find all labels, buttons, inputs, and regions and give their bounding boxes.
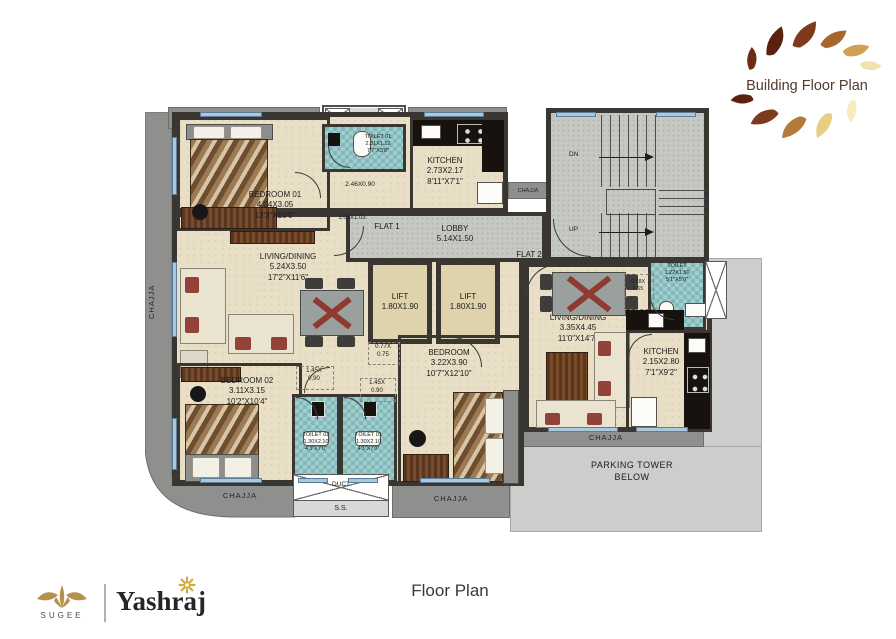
window	[420, 478, 490, 483]
lift-2: LIFT1.80X1.90	[436, 260, 500, 344]
shaft-f2-dim: 0.78X1.65	[624, 279, 652, 293]
floor-plan-page: PARKING TOWERBELOW CHAJJA CHAJJA S.S. CH…	[0, 0, 896, 639]
stair-treads-side	[659, 187, 707, 215]
lobby-label: LOBBY5.14X1.50	[400, 224, 510, 245]
bed-pillow	[224, 457, 252, 478]
window	[348, 478, 378, 483]
toilet-sink	[685, 303, 707, 317]
tv-unit	[230, 231, 315, 244]
toilet-01-top-label: TOILET 012.31X1.127'7"X3'8"	[350, 134, 406, 155]
sofa-cushion	[235, 337, 251, 350]
living-f1-label: LIVING/DINING5.24X3.5017'2"X11'6"	[228, 252, 348, 283]
toilet-01-bottom-label: TOILET 011.30X2.104'3"X7'0"	[340, 432, 397, 453]
ss-bottom-band: S.S.	[293, 500, 389, 517]
stair-landing	[606, 189, 656, 215]
chajja-mini: CHAJJA	[508, 182, 548, 199]
sugee-logo-icon	[33, 584, 91, 610]
kitchen-platform	[631, 397, 657, 427]
bedroom-f2-label: BEDROOM3.22X3.9010'7"X12'10"	[398, 348, 500, 379]
dining-chair	[337, 278, 355, 289]
sofa-cushion	[185, 317, 199, 333]
dining-table-f1	[300, 290, 364, 336]
chajja-bottom-left-label: CHAJJA	[185, 488, 295, 502]
stove-icon	[457, 124, 485, 144]
dining-chair	[305, 336, 323, 347]
dining-chair	[305, 278, 323, 289]
stairs-door-arc	[553, 219, 591, 257]
bed-pillow	[485, 438, 504, 474]
parking-tower-label: PARKING TOWERBELOW	[548, 460, 716, 483]
showcase-cabinet	[546, 352, 588, 404]
stair-treads-upper	[601, 115, 659, 187]
passage-077-dim: 0.77X0.75	[368, 344, 398, 360]
window	[200, 478, 262, 483]
window	[636, 427, 688, 432]
window	[556, 112, 596, 117]
dining-table-f2	[552, 272, 626, 316]
bed-pillow	[485, 398, 504, 434]
desk-chair	[409, 430, 426, 447]
kitchen-f1-label: KITCHEN2.73X2.178'11"X7'1"	[400, 156, 490, 187]
desk-chair	[192, 204, 208, 220]
window	[172, 137, 177, 195]
toilet-f2-label: TOILET1.22X1.505'1"X5'0"	[648, 263, 706, 284]
window	[656, 112, 696, 117]
window	[200, 112, 262, 117]
stairwell: DN UP	[546, 108, 709, 262]
stairs-up-arrow	[599, 232, 651, 233]
chajja-left-label: CHAJJA	[147, 262, 167, 342]
bed-quilt	[185, 404, 259, 456]
sofa-cushion	[598, 381, 611, 396]
sugee-logo-text: SUGEE	[33, 611, 91, 620]
bed-pillow	[193, 126, 225, 139]
sofa-horizontal-f1	[228, 314, 294, 354]
parking-area-bottom	[510, 446, 762, 532]
window	[298, 478, 328, 483]
page-caption: Floor Plan	[350, 581, 550, 601]
toilet-02-bottom-label: TOILET 021.30X2.104'3"X7'0"	[292, 432, 340, 453]
toilet-basin	[328, 133, 340, 146]
footer-divider	[104, 584, 106, 622]
sofa-cushion	[598, 341, 611, 356]
sofa-cushion	[545, 413, 560, 425]
logo-title: Building Floor Plan	[724, 78, 890, 94]
sofa-cushion	[271, 337, 287, 350]
passage-dim-105: 1.05X1.03	[326, 215, 378, 223]
window	[548, 427, 618, 432]
bedroom-02-label: BEDROOM 023.11X3.1510'2"X10'4"	[188, 376, 306, 407]
bed-pillow	[230, 126, 262, 139]
window	[172, 262, 177, 337]
kitchen-sink	[421, 125, 441, 139]
passage-145-b-dim: 1.45X0.90	[360, 380, 394, 396]
yashraj-flower-icon	[178, 576, 196, 594]
window	[424, 112, 484, 117]
window	[172, 418, 177, 470]
sofa-cushion	[185, 277, 199, 293]
flat2-label: FLAT 2	[506, 250, 552, 260]
sofa-vertical-f1	[180, 268, 226, 344]
lift-1: LIFT1.80X1.90	[368, 260, 432, 344]
sofa-cushion	[587, 413, 602, 425]
bed-pillow	[192, 457, 220, 478]
dining-chair	[337, 336, 355, 347]
flue-duct-panel	[705, 261, 727, 319]
lift-2-label: LIFT1.80X1.90	[450, 292, 486, 313]
lift-1-label: LIFT1.80X1.90	[382, 292, 418, 313]
passage-dim-246: 2.46X0.90	[332, 181, 388, 189]
stairs-dn-arrow	[599, 157, 651, 158]
stairs-dn-label: DN	[569, 151, 578, 159]
bed-headboard	[503, 390, 519, 484]
dining-chair	[540, 296, 552, 312]
sofa-horizontal-f2	[536, 400, 616, 428]
